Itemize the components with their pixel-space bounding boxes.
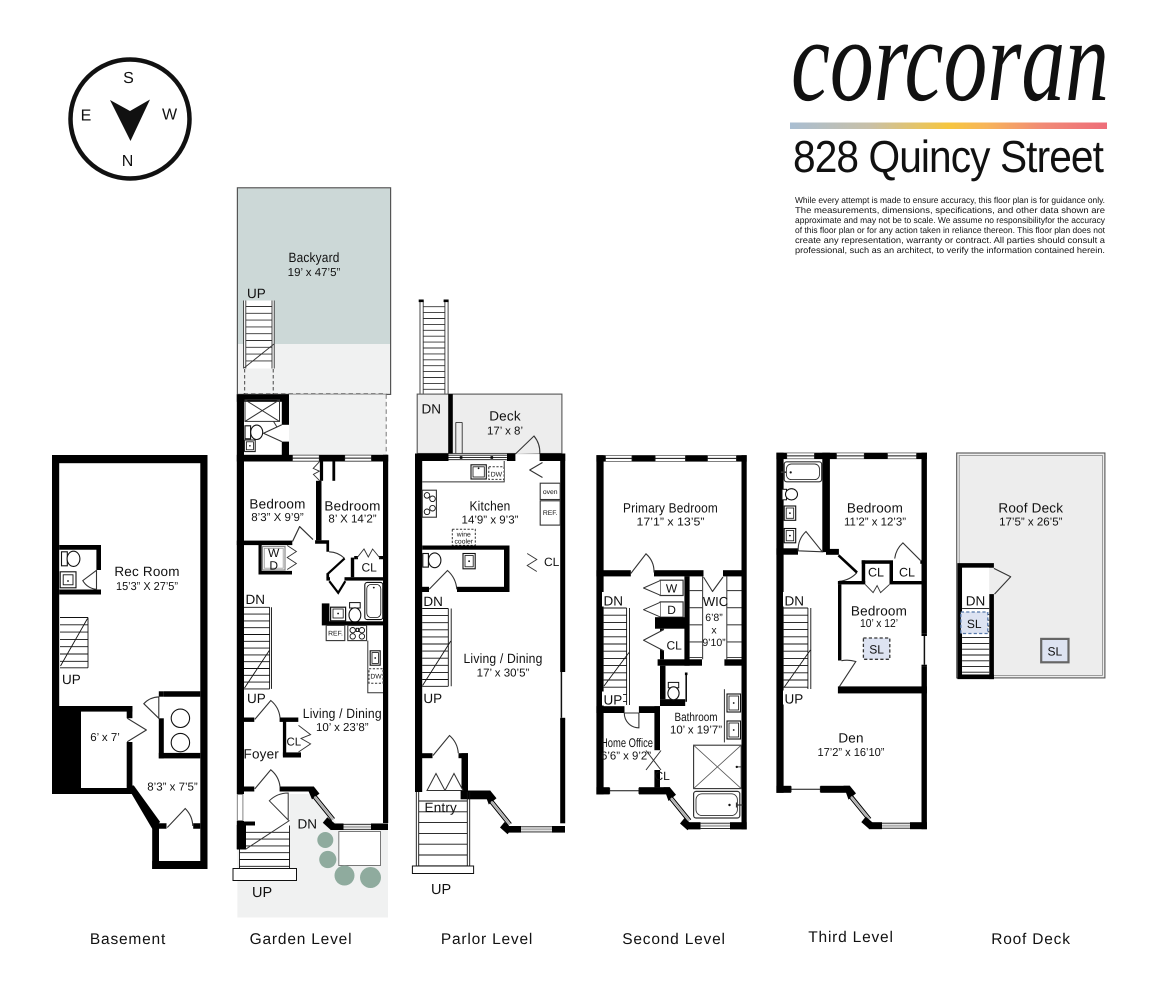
svg-text:Bedroom: Bedroom — [249, 497, 305, 512]
svg-text:CL: CL — [899, 566, 915, 580]
svg-text:10’ x 23’8”: 10’ x 23’8” — [316, 722, 369, 734]
svg-text:Living / Dining: Living / Dining — [303, 706, 382, 721]
svg-text:17’5” x 26’5”: 17’5” x 26’5” — [999, 517, 1062, 529]
svg-text:DN: DN — [423, 594, 443, 609]
svg-text:create any representation, war: create any representation, warranty or c… — [795, 235, 1105, 245]
svg-text:11’2” x 12’3”: 11’2” x 12’3” — [844, 517, 906, 529]
svg-text:corcoran: corcoran — [791, 0, 1109, 127]
svg-text:WIC: WIC — [703, 594, 728, 609]
svg-text:Deck: Deck — [489, 409, 521, 424]
svg-text:10’ x 19’7”: 10’ x 19’7” — [670, 725, 722, 737]
svg-text:Kitchen: Kitchen — [470, 499, 511, 514]
svg-text:REF.: REF. — [543, 510, 558, 517]
svg-text:828 Quincy Street: 828 Quincy Street — [793, 131, 1104, 182]
svg-text:Den: Den — [838, 731, 863, 746]
svg-text:REF.: REF. — [328, 631, 343, 638]
svg-text:cooler: cooler — [455, 539, 474, 546]
svg-text:CL: CL — [287, 737, 302, 749]
svg-text:While every attempt is made to: While every attempt is made to ensure ac… — [795, 195, 1105, 205]
svg-text:CL: CL — [544, 555, 560, 569]
svg-text:DW: DW — [370, 674, 382, 681]
svg-text:Basement: Basement — [90, 931, 166, 948]
svg-text:Third Level: Third Level — [808, 929, 893, 946]
svg-text:DN: DN — [246, 592, 266, 607]
svg-text:SL: SL — [869, 643, 884, 657]
svg-text:6’8”: 6’8” — [705, 612, 723, 624]
svg-text:6’6” x 9’2”: 6’6” x 9’2” — [601, 751, 651, 763]
svg-text:Foyer: Foyer — [244, 747, 280, 762]
svg-text:Backyard: Backyard — [289, 250, 340, 265]
svg-text:UP: UP — [785, 692, 804, 707]
svg-text:Garden Level: Garden Level — [250, 931, 353, 948]
svg-text:UP: UP — [252, 885, 272, 901]
svg-text:wine: wine — [456, 532, 471, 539]
svg-text:Entry: Entry — [425, 800, 458, 815]
svg-text:17’ x 8’: 17’ x 8’ — [487, 426, 523, 438]
svg-text:8’3” X 9’9”: 8’3” X 9’9” — [251, 512, 304, 524]
svg-text:DN: DN — [422, 402, 442, 417]
svg-text:UP: UP — [62, 672, 81, 687]
svg-text:9’10”: 9’10” — [702, 637, 726, 649]
svg-text:Second Level: Second Level — [622, 931, 726, 948]
svg-text:8’3” x 7’5”: 8’3” x 7’5” — [147, 782, 198, 794]
svg-text:17’1” x 13’5”: 17’1” x 13’5” — [637, 517, 705, 529]
svg-text:N: N — [122, 153, 134, 170]
svg-text:The measurements, dimensions,: The measurements, dimensions, specificat… — [795, 205, 1105, 215]
svg-text:D: D — [269, 559, 278, 573]
svg-text:DN: DN — [604, 594, 624, 609]
svg-text:CL: CL — [667, 639, 683, 653]
svg-text:Primary Bedroom: Primary Bedroom — [623, 501, 718, 516]
svg-text:Bathroom: Bathroom — [675, 710, 718, 724]
svg-text:UP: UP — [247, 691, 266, 706]
svg-text:8’ X 14’2”: 8’ X 14’2” — [328, 514, 376, 526]
svg-text:17’2” x 16’10”: 17’2” x 16’10” — [818, 747, 885, 759]
svg-text:of this floor plan or for any: of this floor plan or for any action tak… — [795, 225, 1106, 235]
svg-text:Living / Dining: Living / Dining — [464, 651, 543, 666]
svg-text:S: S — [123, 70, 134, 87]
svg-text:E: E — [81, 108, 92, 125]
svg-text:Roof Deck: Roof Deck — [998, 501, 1063, 516]
svg-text:Roof Deck: Roof Deck — [991, 931, 1071, 948]
svg-text:Parlor Level: Parlor Level — [441, 931, 533, 948]
svg-text:approximate and may not be to: approximate and may not be to scale. We … — [795, 215, 1106, 225]
svg-text:UP: UP — [604, 693, 623, 708]
svg-text:DN: DN — [785, 594, 805, 609]
svg-text:19’ x 47’5”: 19’ x 47’5” — [288, 267, 341, 279]
svg-text:oven: oven — [543, 489, 558, 496]
svg-text:DW: DW — [491, 472, 503, 479]
svg-text:Bedroom: Bedroom — [847, 501, 903, 516]
svg-text:CL: CL — [362, 561, 378, 575]
svg-text:Bedroom: Bedroom — [324, 499, 380, 514]
svg-text:SL: SL — [1047, 645, 1062, 659]
svg-text:CL: CL — [655, 769, 671, 783]
svg-text:UP: UP — [431, 882, 451, 898]
svg-text:UP: UP — [423, 691, 442, 706]
svg-text:DN: DN — [966, 594, 986, 609]
svg-text:D: D — [667, 603, 676, 617]
svg-text:W: W — [162, 107, 178, 124]
svg-text:17’ x 30’5”: 17’ x 30’5” — [477, 668, 530, 680]
svg-text:UP: UP — [247, 286, 266, 301]
svg-text:DN: DN — [298, 817, 318, 832]
svg-text:10’ x 12’: 10’ x 12’ — [860, 618, 898, 630]
svg-text:6’ x 7’: 6’ x 7’ — [90, 732, 120, 744]
svg-text:W: W — [666, 582, 678, 596]
svg-text:Home Office: Home Office — [601, 736, 653, 750]
svg-text:x: x — [711, 625, 717, 637]
svg-text:CL: CL — [868, 566, 884, 580]
svg-text:Bedroom: Bedroom — [851, 604, 907, 619]
svg-text:professional, such as an archi: professional, such as an architect, to v… — [795, 245, 1105, 255]
svg-text:15’3” X 27’5”: 15’3” X 27’5” — [116, 581, 178, 593]
svg-text:SL: SL — [967, 617, 982, 631]
svg-text:14’9” x 9’3”: 14’9” x 9’3” — [462, 515, 519, 527]
svg-text:Rec Room: Rec Room — [114, 564, 179, 579]
